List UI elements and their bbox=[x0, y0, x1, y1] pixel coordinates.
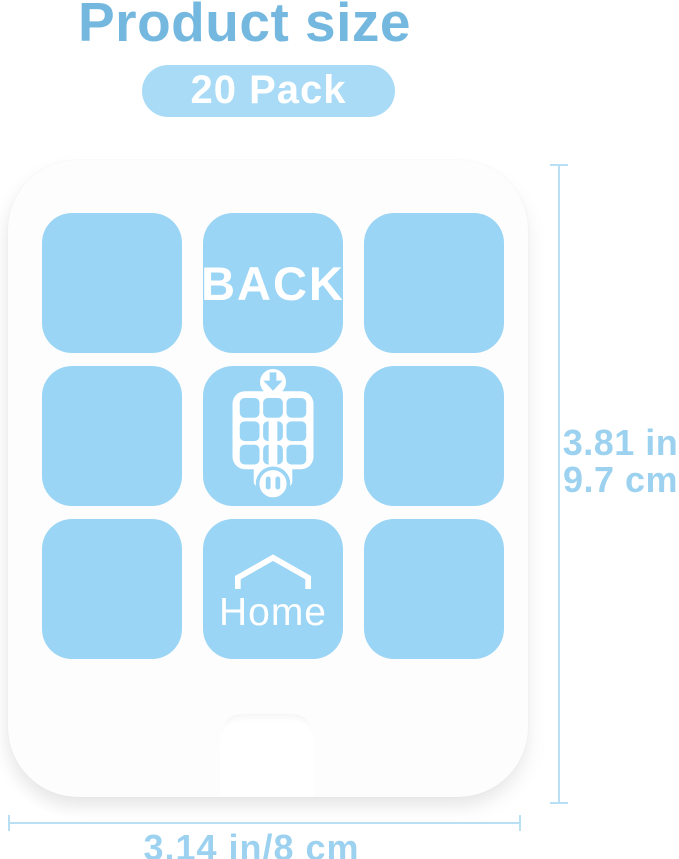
plug-night-light-icon bbox=[220, 369, 326, 504]
width-dimension-label: 3.14 in/8 cm bbox=[95, 827, 408, 859]
back-label: BACK bbox=[201, 256, 345, 311]
height-centimeters: 9.7 cm bbox=[562, 461, 679, 498]
page-title: Product size bbox=[78, 0, 411, 50]
pad-grid: BACK bbox=[42, 213, 504, 659]
bottom-notch bbox=[220, 714, 314, 797]
product-card: BACK bbox=[8, 160, 528, 797]
height-dimension-label: 3.81 in 9.7 cm bbox=[562, 424, 679, 498]
home-label: Home bbox=[219, 591, 327, 635]
pack-count-badge: 20 Pack bbox=[142, 65, 395, 117]
pad-square bbox=[364, 366, 504, 506]
pad-square-device bbox=[203, 366, 343, 506]
product-size-infographic: Product size 20 Pack BACK bbox=[0, 0, 679, 859]
height-inches: 3.81 in bbox=[562, 424, 679, 461]
pad-square bbox=[42, 366, 182, 506]
down-arrow-icon bbox=[260, 369, 286, 395]
height-dimension-line bbox=[558, 164, 560, 804]
pad-square-back: BACK bbox=[203, 213, 343, 353]
pack-count-label: 20 Pack bbox=[190, 68, 346, 115]
pad-square-home: Home bbox=[203, 519, 343, 659]
pad-square bbox=[364, 213, 504, 353]
pad-square bbox=[364, 519, 504, 659]
pad-square bbox=[42, 519, 182, 659]
night-light-bar bbox=[269, 418, 278, 465]
width-dimension-line bbox=[8, 822, 521, 824]
pad-square bbox=[42, 213, 182, 353]
outlet-icon bbox=[254, 464, 293, 499]
house-roof-icon bbox=[233, 552, 313, 590]
